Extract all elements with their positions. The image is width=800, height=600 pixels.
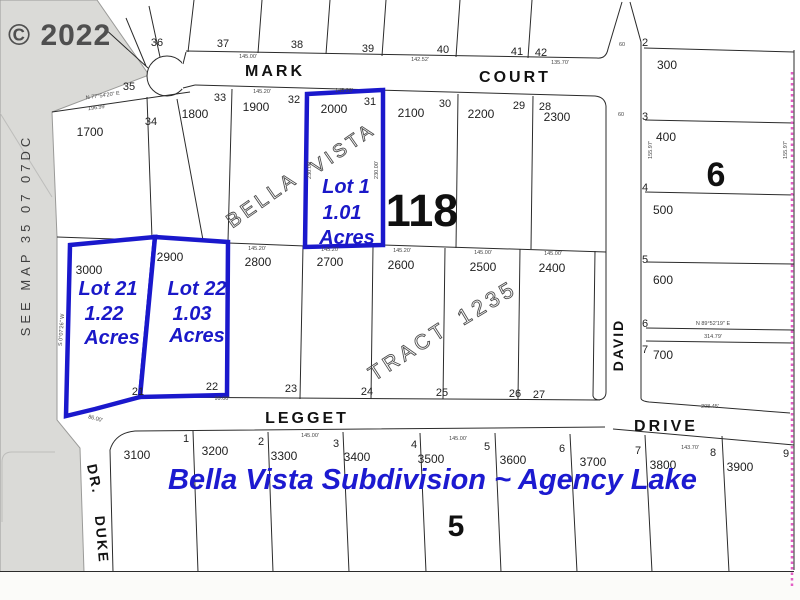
lot-number: 3 — [642, 111, 648, 123]
map-number: 118 — [386, 185, 459, 236]
svg-text:145.00': 145.00' — [449, 436, 467, 442]
street-mark: MARK — [245, 63, 305, 80]
tax-lot: 3000 — [76, 263, 103, 277]
plat-map-page: © 2022 SEE MAP 35 07 07DC MARK COURT LEG… — [0, 0, 800, 600]
plat-word-tract-number: 1235 — [453, 275, 522, 330]
svg-text:145.00': 145.00' — [544, 251, 562, 257]
lot-number: 29 — [513, 100, 525, 112]
lot22-acres: 1.03 — [173, 303, 212, 325]
lot-number: 42 — [535, 47, 547, 59]
lot-number: 22 — [206, 381, 218, 393]
tax-lot: 2100 — [398, 106, 425, 120]
svg-text:230.00': 230.00' — [307, 161, 313, 179]
svg-text:208.45': 208.45' — [701, 404, 719, 410]
tax-lot: 400 — [656, 130, 676, 144]
tax-lot: 300 — [657, 58, 677, 72]
tax-lot: 2400 — [539, 261, 566, 275]
lot-number: 21 — [132, 386, 144, 398]
svg-text:99.00': 99.00' — [215, 396, 230, 402]
block-south: 5 — [448, 510, 465, 543]
lot1-acres: 1.01 — [323, 202, 362, 224]
svg-text:196.99': 196.99' — [88, 104, 107, 112]
lot1-number: 31 — [364, 96, 376, 108]
plat-map: © 2022 SEE MAP 35 07 07DC MARK COURT LEG… — [0, 0, 800, 600]
lot21-name: Lot 21 — [79, 278, 138, 300]
tax-lot: 2300 — [544, 110, 571, 124]
tax-lot: 2900 — [157, 250, 184, 264]
svg-text:142.52': 142.52' — [411, 57, 429, 63]
lot-number: 5 — [642, 254, 648, 266]
tax-lot: 2600 — [388, 258, 415, 272]
lot-number: 3 — [333, 438, 339, 450]
block-east: 6 — [707, 156, 726, 194]
plat-word-tract: TRACT — [364, 317, 452, 385]
lot22-name: Lot 22 — [168, 278, 227, 300]
tax-lot: 2800 — [245, 255, 272, 269]
svg-text:145.20': 145.20' — [248, 246, 266, 252]
lot-number: 7 — [642, 344, 648, 356]
lot-number: 35 — [123, 81, 135, 93]
svg-text:S 0°07'26" W: S 0°07'26" W — [58, 313, 66, 347]
street-legget: LEGGET — [265, 410, 349, 427]
lot-number: 32 — [288, 94, 300, 106]
svg-text:145.00': 145.00' — [239, 54, 257, 60]
lot-number: 6 — [559, 443, 565, 455]
bottom-margin-strip — [0, 572, 800, 600]
lot-number: 9 — [783, 448, 789, 460]
lot-number: 24 — [361, 386, 373, 398]
lot-number: 5 — [484, 441, 490, 453]
subdivision-title: Bella Vista Subdivision ~ Agency Lake — [168, 464, 697, 496]
svg-text:314.79': 314.79' — [704, 334, 722, 340]
svg-text:135.70': 135.70' — [551, 60, 569, 66]
lot-number: 26 — [509, 388, 521, 400]
lot-number: 41 — [511, 46, 523, 58]
svg-text:N 89°52'19" E: N 89°52'19" E — [696, 321, 731, 327]
street-duke: DUKE — [92, 515, 112, 564]
tax-lot: 500 — [653, 203, 673, 217]
tax-lot: 2200 — [468, 107, 495, 121]
lot1-name: Lot 1 — [322, 176, 370, 198]
lot-number: 37 — [217, 38, 229, 50]
plat-word-bella: BELLA — [223, 167, 303, 232]
street-court: COURT — [479, 69, 551, 86]
tax-lot: 3400 — [344, 450, 371, 464]
tax-lot: 3900 — [727, 460, 754, 474]
lot1-acres-label: Acres — [318, 227, 375, 249]
tax-lot: 3200 — [202, 444, 229, 458]
lot-number: 8 — [710, 447, 716, 459]
lot-number: 38 — [291, 39, 303, 51]
tax-lot: 3300 — [271, 449, 298, 463]
lot-number: 4 — [411, 439, 417, 451]
tax-lot: 600 — [653, 273, 673, 287]
svg-text:145.20': 145.20' — [321, 247, 339, 253]
svg-text:143.70': 143.70' — [681, 445, 699, 451]
lot-number: 30 — [439, 98, 451, 110]
svg-text:155.97': 155.97' — [783, 141, 789, 159]
street-drive: DRIVE — [634, 418, 698, 435]
margin-map-reference: SEE MAP 35 07 07DC — [18, 134, 33, 337]
tax-lot: 2700 — [317, 255, 344, 269]
tax-lot: 1900 — [243, 100, 270, 114]
tax-lot: 2500 — [470, 260, 497, 274]
svg-text:145.20': 145.20' — [253, 89, 271, 95]
svg-text:60: 60 — [619, 42, 625, 48]
lot-number: 6 — [642, 318, 648, 330]
svg-text:230.00': 230.00' — [374, 161, 380, 179]
tax-lot: 3100 — [124, 448, 151, 462]
lot-number: 27 — [533, 389, 545, 401]
svg-text:145.00': 145.00' — [474, 250, 492, 256]
svg-text:145.20': 145.20' — [393, 248, 411, 254]
street-duke-suffix: DR. — [84, 463, 106, 496]
lot1-taxlot: 2000 — [321, 102, 348, 116]
lot-number: 4 — [642, 182, 648, 194]
svg-text:86.00': 86.00' — [87, 414, 103, 424]
lot22-acres-label: Acres — [168, 325, 225, 347]
street-david: DAVID — [610, 319, 626, 372]
lot21-acres: 1.22 — [85, 303, 124, 325]
tax-lot: 700 — [653, 348, 673, 362]
lot-number: 39 — [362, 43, 374, 55]
tax-lot: 1800 — [182, 107, 209, 121]
lot-number: 1 — [183, 433, 189, 445]
lot-number: 2 — [258, 436, 264, 448]
lot21-acres-label: Acres — [83, 327, 140, 349]
tax-lot: 1700 — [77, 125, 104, 139]
lot-number: 2 — [642, 37, 648, 49]
svg-text:145.00': 145.00' — [301, 433, 319, 439]
copyright-watermark: © 2022 — [8, 19, 111, 52]
svg-text:155.97': 155.97' — [648, 141, 654, 159]
lot-number: 34 — [145, 116, 157, 128]
svg-text:60: 60 — [618, 112, 624, 118]
lot-number: 25 — [436, 387, 448, 399]
lot-number: 23 — [285, 383, 297, 395]
lot-number: 7 — [635, 445, 641, 457]
svg-text:145.20': 145.20' — [335, 88, 353, 94]
lot-number: 40 — [437, 44, 449, 56]
lot-number: 33 — [214, 92, 226, 104]
lot-number: 36 — [151, 37, 163, 49]
